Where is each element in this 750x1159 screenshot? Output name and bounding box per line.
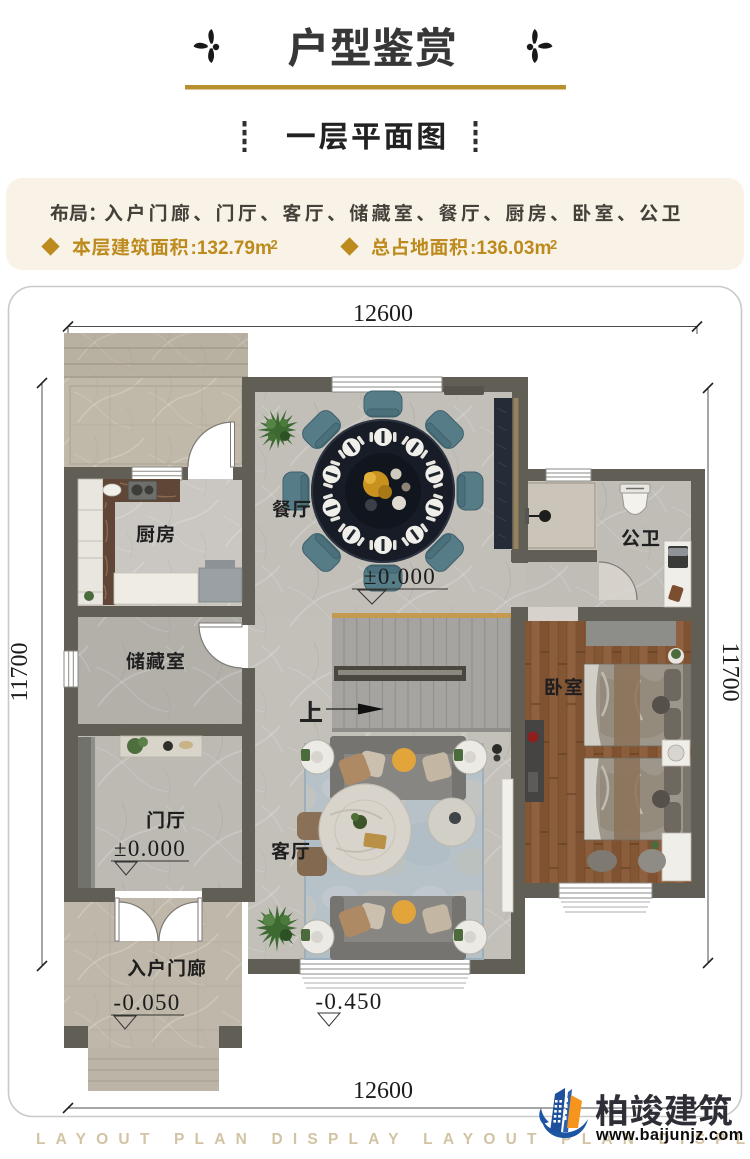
svg-text:±0.000: ±0.000 — [364, 564, 436, 589]
svg-text::132.79m: :132.79m — [191, 238, 272, 259]
svg-text:11700: 11700 — [717, 642, 743, 701]
svg-text:-0.050: -0.050 — [113, 990, 180, 1015]
svg-text:2: 2 — [271, 237, 278, 252]
svg-text:-0.450: -0.450 — [315, 989, 382, 1014]
svg-text:12600: 12600 — [353, 301, 413, 327]
svg-text::136.03m: :136.03m — [470, 238, 551, 259]
svg-text:±0.000: ±0.000 — [114, 836, 186, 861]
svg-text:11700: 11700 — [7, 642, 33, 701]
svg-text:12600: 12600 — [353, 1078, 413, 1104]
svg-text:www.baijunjz.com: www.baijunjz.com — [595, 1126, 744, 1144]
svg-text:2: 2 — [550, 237, 557, 252]
